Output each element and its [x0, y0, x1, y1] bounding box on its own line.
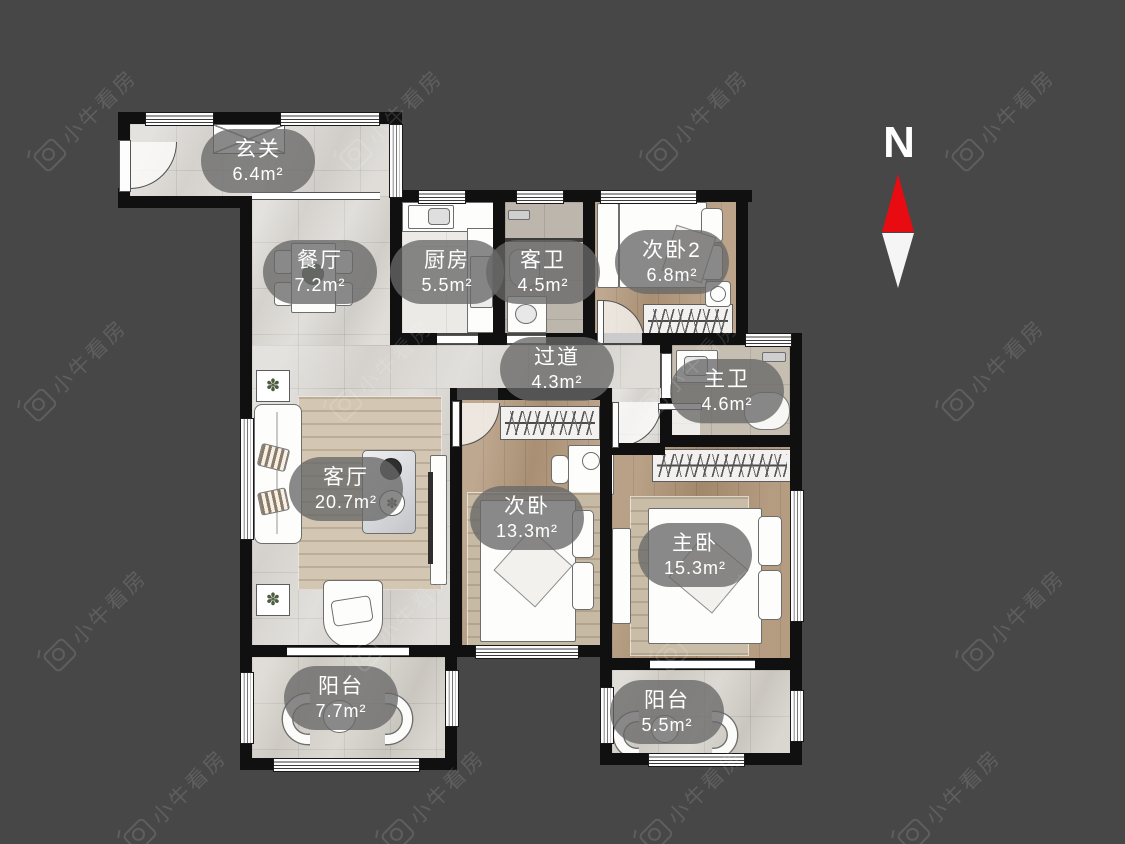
room-name: 主卫 — [704, 367, 750, 393]
second-bedroom-pillow — [572, 562, 594, 610]
watermark-logo-icon — [380, 817, 417, 844]
master-pillow — [758, 516, 782, 566]
watermark-logo-icon — [644, 137, 681, 174]
wall — [612, 443, 665, 455]
room-label-balcony1: 阳台 7.7m² — [284, 666, 398, 730]
watermark: 小牛看房 — [39, 562, 153, 676]
window — [240, 418, 254, 540]
window — [273, 758, 420, 772]
watermark: 小牛看房 — [19, 312, 133, 426]
room-label-bedroom2: 次卧2 6.8m² — [615, 230, 729, 294]
window — [516, 190, 564, 204]
wall — [118, 196, 252, 208]
master-wardrobe — [652, 449, 792, 482]
sofa-cushion-line — [276, 412, 278, 534]
window — [475, 645, 579, 659]
wall — [478, 333, 507, 345]
watermark: 小牛看房 — [119, 742, 233, 844]
second-bedroom-door-leaf — [452, 401, 460, 447]
room-name: 次卧2 — [642, 238, 702, 264]
entry-door-leaf — [119, 140, 131, 192]
desk-lamp — [582, 452, 600, 470]
room-area: 6.4m² — [232, 163, 283, 186]
compass-needle-south — [882, 233, 914, 288]
watermark-logo-icon — [122, 817, 159, 844]
window — [790, 690, 804, 742]
watermark-logo-icon — [638, 817, 675, 844]
sliding-door-entrance-dining — [252, 192, 380, 200]
wall — [790, 333, 802, 493]
window — [600, 190, 697, 204]
room-area: 7.7m² — [315, 700, 366, 723]
watermark-logo-icon — [42, 637, 79, 674]
plant-box: ✽ — [256, 584, 290, 616]
window — [648, 753, 745, 767]
master-bath-faucet — [762, 352, 786, 362]
watermark: 小牛看房 — [937, 312, 1051, 426]
guest-bath-faucet — [508, 210, 530, 220]
window — [745, 333, 792, 347]
room-label-living: 客厅 20.7m² — [289, 457, 403, 521]
sliding-door-living-balcony — [287, 647, 409, 656]
watermark-logo-icon — [960, 637, 997, 674]
room-label-balcony2: 阳台 5.5m² — [610, 680, 724, 744]
wall — [600, 400, 612, 658]
room-area: 7.2m² — [294, 274, 345, 297]
room-area: 4.3m² — [531, 371, 582, 394]
room-name: 次卧 — [504, 494, 550, 520]
watermark: 小牛看房 — [893, 742, 1007, 844]
room-label-master-bedroom: 主卧 15.3m² — [638, 523, 752, 587]
window — [280, 112, 380, 126]
window — [790, 490, 804, 622]
wall — [660, 345, 672, 353]
wall — [390, 333, 437, 345]
room-area: 6.8m² — [646, 264, 697, 287]
room-name: 主卧 — [672, 531, 718, 557]
sliding-door-kitchen — [437, 335, 478, 344]
room-area: 5.5m² — [421, 274, 472, 297]
tv-screen — [428, 472, 433, 564]
wall — [736, 190, 748, 345]
second-bedroom-wardrobe — [500, 406, 600, 440]
room-area: 13.3m² — [496, 520, 558, 543]
bedroom2-door-leaf — [597, 300, 604, 344]
compass-needle-north — [882, 174, 914, 232]
wall — [118, 112, 130, 140]
wall — [660, 435, 802, 447]
kitchen-sink-basin — [428, 208, 450, 225]
room-name: 客卫 — [520, 248, 566, 274]
bedroom2-cabinet — [597, 203, 619, 288]
watermark-logo-icon — [32, 137, 69, 174]
room-label-dining: 餐厅 7.2m² — [263, 240, 377, 304]
compass-north-label: N — [877, 118, 921, 168]
room-area: 20.7m² — [315, 491, 377, 514]
room-area: 15.3m² — [664, 557, 726, 580]
floor-plan-canvas: ✽ ✽ ✽ — [0, 0, 1125, 844]
master-pillow — [758, 570, 782, 620]
watermark: 小牛看房 — [957, 562, 1071, 676]
room-label-master-bath: 主卫 4.6m² — [670, 359, 784, 423]
room-label-guest-bath: 客卫 4.5m² — [486, 240, 600, 304]
room-label-hallway: 过道 4.3m² — [500, 337, 614, 401]
master-dresser — [612, 528, 631, 624]
plant-box: ✽ — [256, 370, 290, 402]
room-name: 阳台 — [644, 688, 690, 714]
room-name: 餐厅 — [297, 248, 343, 274]
room-name: 过道 — [534, 345, 580, 371]
pocket-corridor-door-leaf — [612, 402, 619, 448]
room-label-second-bedroom: 次卧 13.3m² — [470, 486, 584, 550]
window — [240, 672, 254, 744]
room-label-entrance: 玄关 6.4m² — [201, 129, 315, 193]
room-name: 阳台 — [318, 674, 364, 700]
watermark-logo-icon — [950, 137, 987, 174]
sliding-door-master-balcony — [650, 660, 755, 669]
watermark-logo-icon — [22, 387, 59, 424]
room-area: 4.6m² — [701, 393, 752, 416]
desk-chair — [551, 455, 569, 484]
room-name: 客厅 — [323, 465, 369, 491]
window — [418, 190, 466, 204]
room-name: 厨房 — [424, 248, 470, 274]
watermark: 小牛看房 — [947, 62, 1061, 176]
window — [389, 124, 403, 198]
watermark-logo-icon — [896, 817, 933, 844]
room-area: 5.5m² — [641, 714, 692, 737]
window — [445, 670, 459, 727]
room-name: 玄关 — [235, 137, 281, 163]
watermark-logo-icon — [940, 387, 977, 424]
guest-bath-sink-bowl — [515, 304, 537, 324]
room-area: 4.5m² — [517, 274, 568, 297]
wall — [450, 388, 457, 400]
watermark: 小牛看房 — [641, 62, 755, 176]
window — [145, 112, 214, 126]
